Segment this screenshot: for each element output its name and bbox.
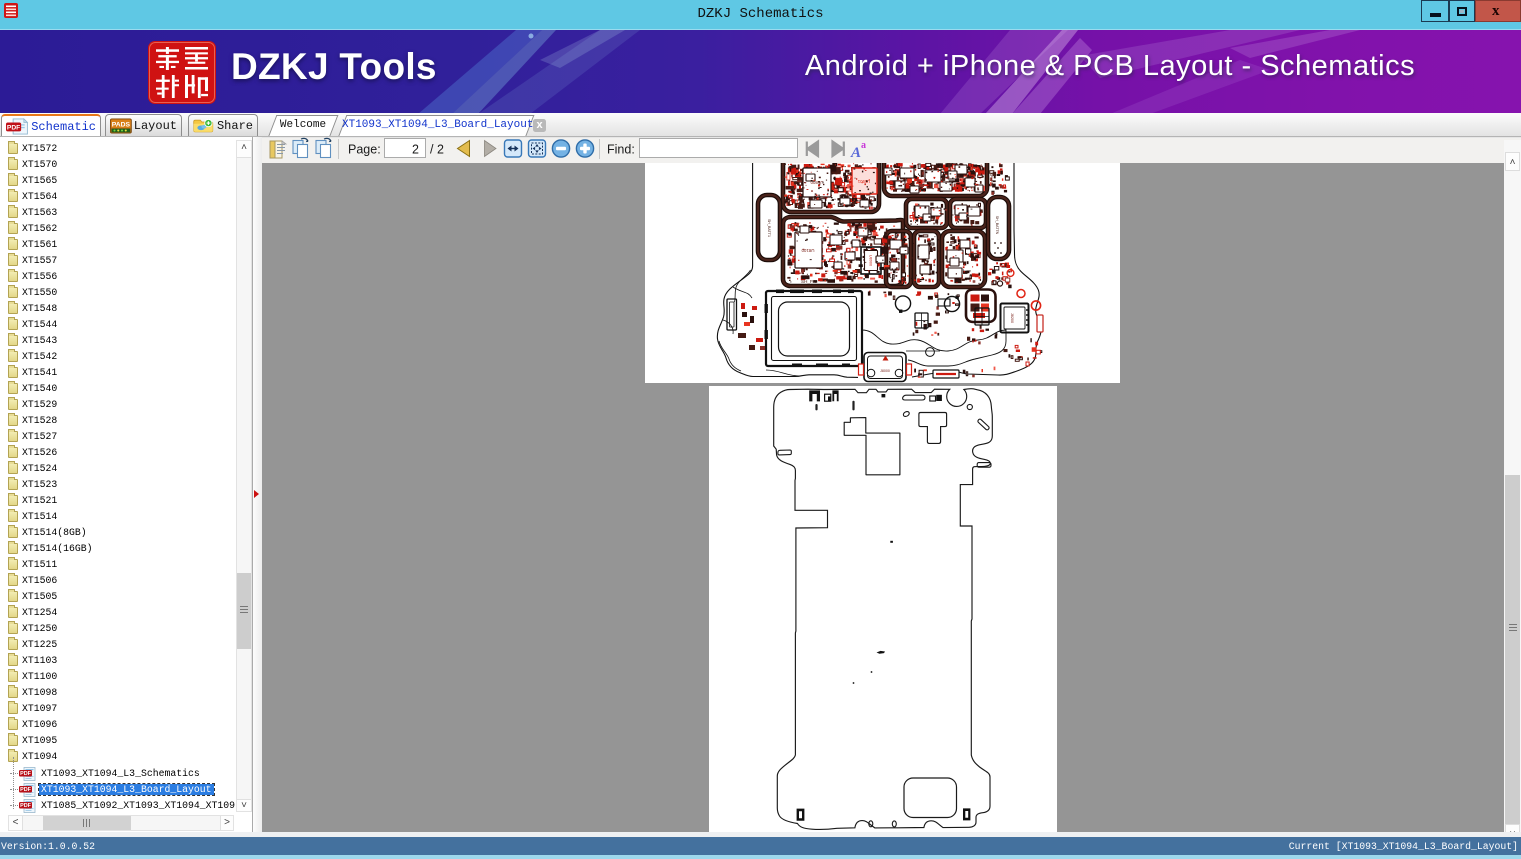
svg-text:Page:: Page: — [348, 143, 381, 157]
svg-text:SH_BATT1: SH_BATT1 — [767, 219, 771, 237]
svg-text:U8100: U8100 — [801, 248, 814, 253]
svg-text:PDF: PDF — [7, 125, 20, 132]
svg-text:J8200: J8200 — [1010, 313, 1014, 323]
svg-text:PDF: PDF — [20, 787, 31, 793]
svg-text:PADS: PADS — [112, 122, 131, 129]
svg-text:A: A — [850, 145, 861, 161]
svg-text:SH_BATTN: SH_BATTN — [995, 216, 999, 235]
svg-text:J8000: J8000 — [880, 369, 890, 373]
svg-text:/ 2: / 2 — [430, 143, 444, 157]
svg-text:PDF: PDF — [20, 803, 31, 809]
svg-text:2: 2 — [412, 143, 419, 157]
svg-text:U5901: U5901 — [857, 179, 870, 184]
svg-text:a: a — [861, 140, 866, 151]
svg-text:PDF: PDF — [20, 771, 31, 777]
svg-text:Find:: Find: — [607, 143, 635, 157]
svg-text:U8900: U8900 — [869, 255, 873, 266]
